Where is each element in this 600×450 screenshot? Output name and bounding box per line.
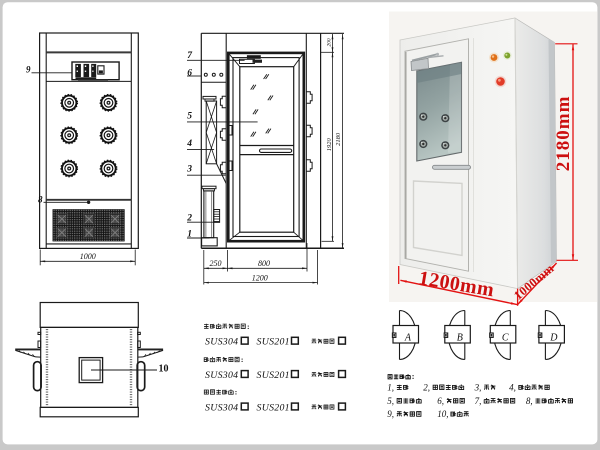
svg-text::: : (247, 322, 250, 331)
svg-text:10,: 10, (437, 409, 448, 419)
svg-text:4: 4 (186, 139, 192, 149)
svg-text:SUS304: SUS304 (205, 337, 238, 348)
svg-text:9,: 9, (387, 409, 394, 419)
svg-text:1,: 1, (387, 383, 394, 393)
svg-text:8,: 8, (526, 396, 533, 406)
svg-text:8: 8 (38, 195, 43, 205)
svg-text:7,: 7, (475, 396, 482, 406)
svg-text::: : (235, 388, 238, 397)
svg-text:2,: 2, (423, 383, 430, 393)
svg-text:250: 250 (210, 259, 222, 268)
svg-text:SUS201: SUS201 (257, 370, 290, 381)
svg-text:2180mm: 2180mm (553, 96, 574, 172)
svg-text:SUS201: SUS201 (257, 337, 290, 348)
svg-text:6: 6 (187, 69, 192, 79)
svg-text:SUS304: SUS304 (205, 402, 238, 413)
svg-text:3: 3 (186, 165, 192, 175)
svg-text:4,: 4, (509, 383, 516, 393)
svg-text:D: D (549, 333, 558, 344)
svg-text:5: 5 (187, 111, 192, 121)
svg-text:1920: 1920 (326, 138, 333, 152)
svg-text:SUS201: SUS201 (257, 402, 290, 413)
svg-text:200: 200 (327, 38, 333, 47)
svg-text:1000: 1000 (80, 252, 96, 261)
svg-text:2180: 2180 (335, 132, 342, 146)
svg-text:5,: 5, (387, 396, 394, 406)
svg-text:800: 800 (258, 259, 270, 268)
svg-text:A: A (404, 333, 412, 344)
svg-text:10: 10 (159, 363, 169, 374)
svg-text:C: C (502, 333, 509, 344)
svg-text:B: B (457, 333, 463, 344)
svg-text:SUS304: SUS304 (205, 370, 238, 381)
svg-text:3,: 3, (474, 383, 482, 393)
svg-text:9: 9 (26, 65, 31, 75)
svg-text:6,: 6, (437, 396, 444, 406)
svg-text:1200: 1200 (252, 273, 268, 282)
svg-text::: : (412, 372, 415, 381)
svg-text::: : (241, 355, 244, 364)
